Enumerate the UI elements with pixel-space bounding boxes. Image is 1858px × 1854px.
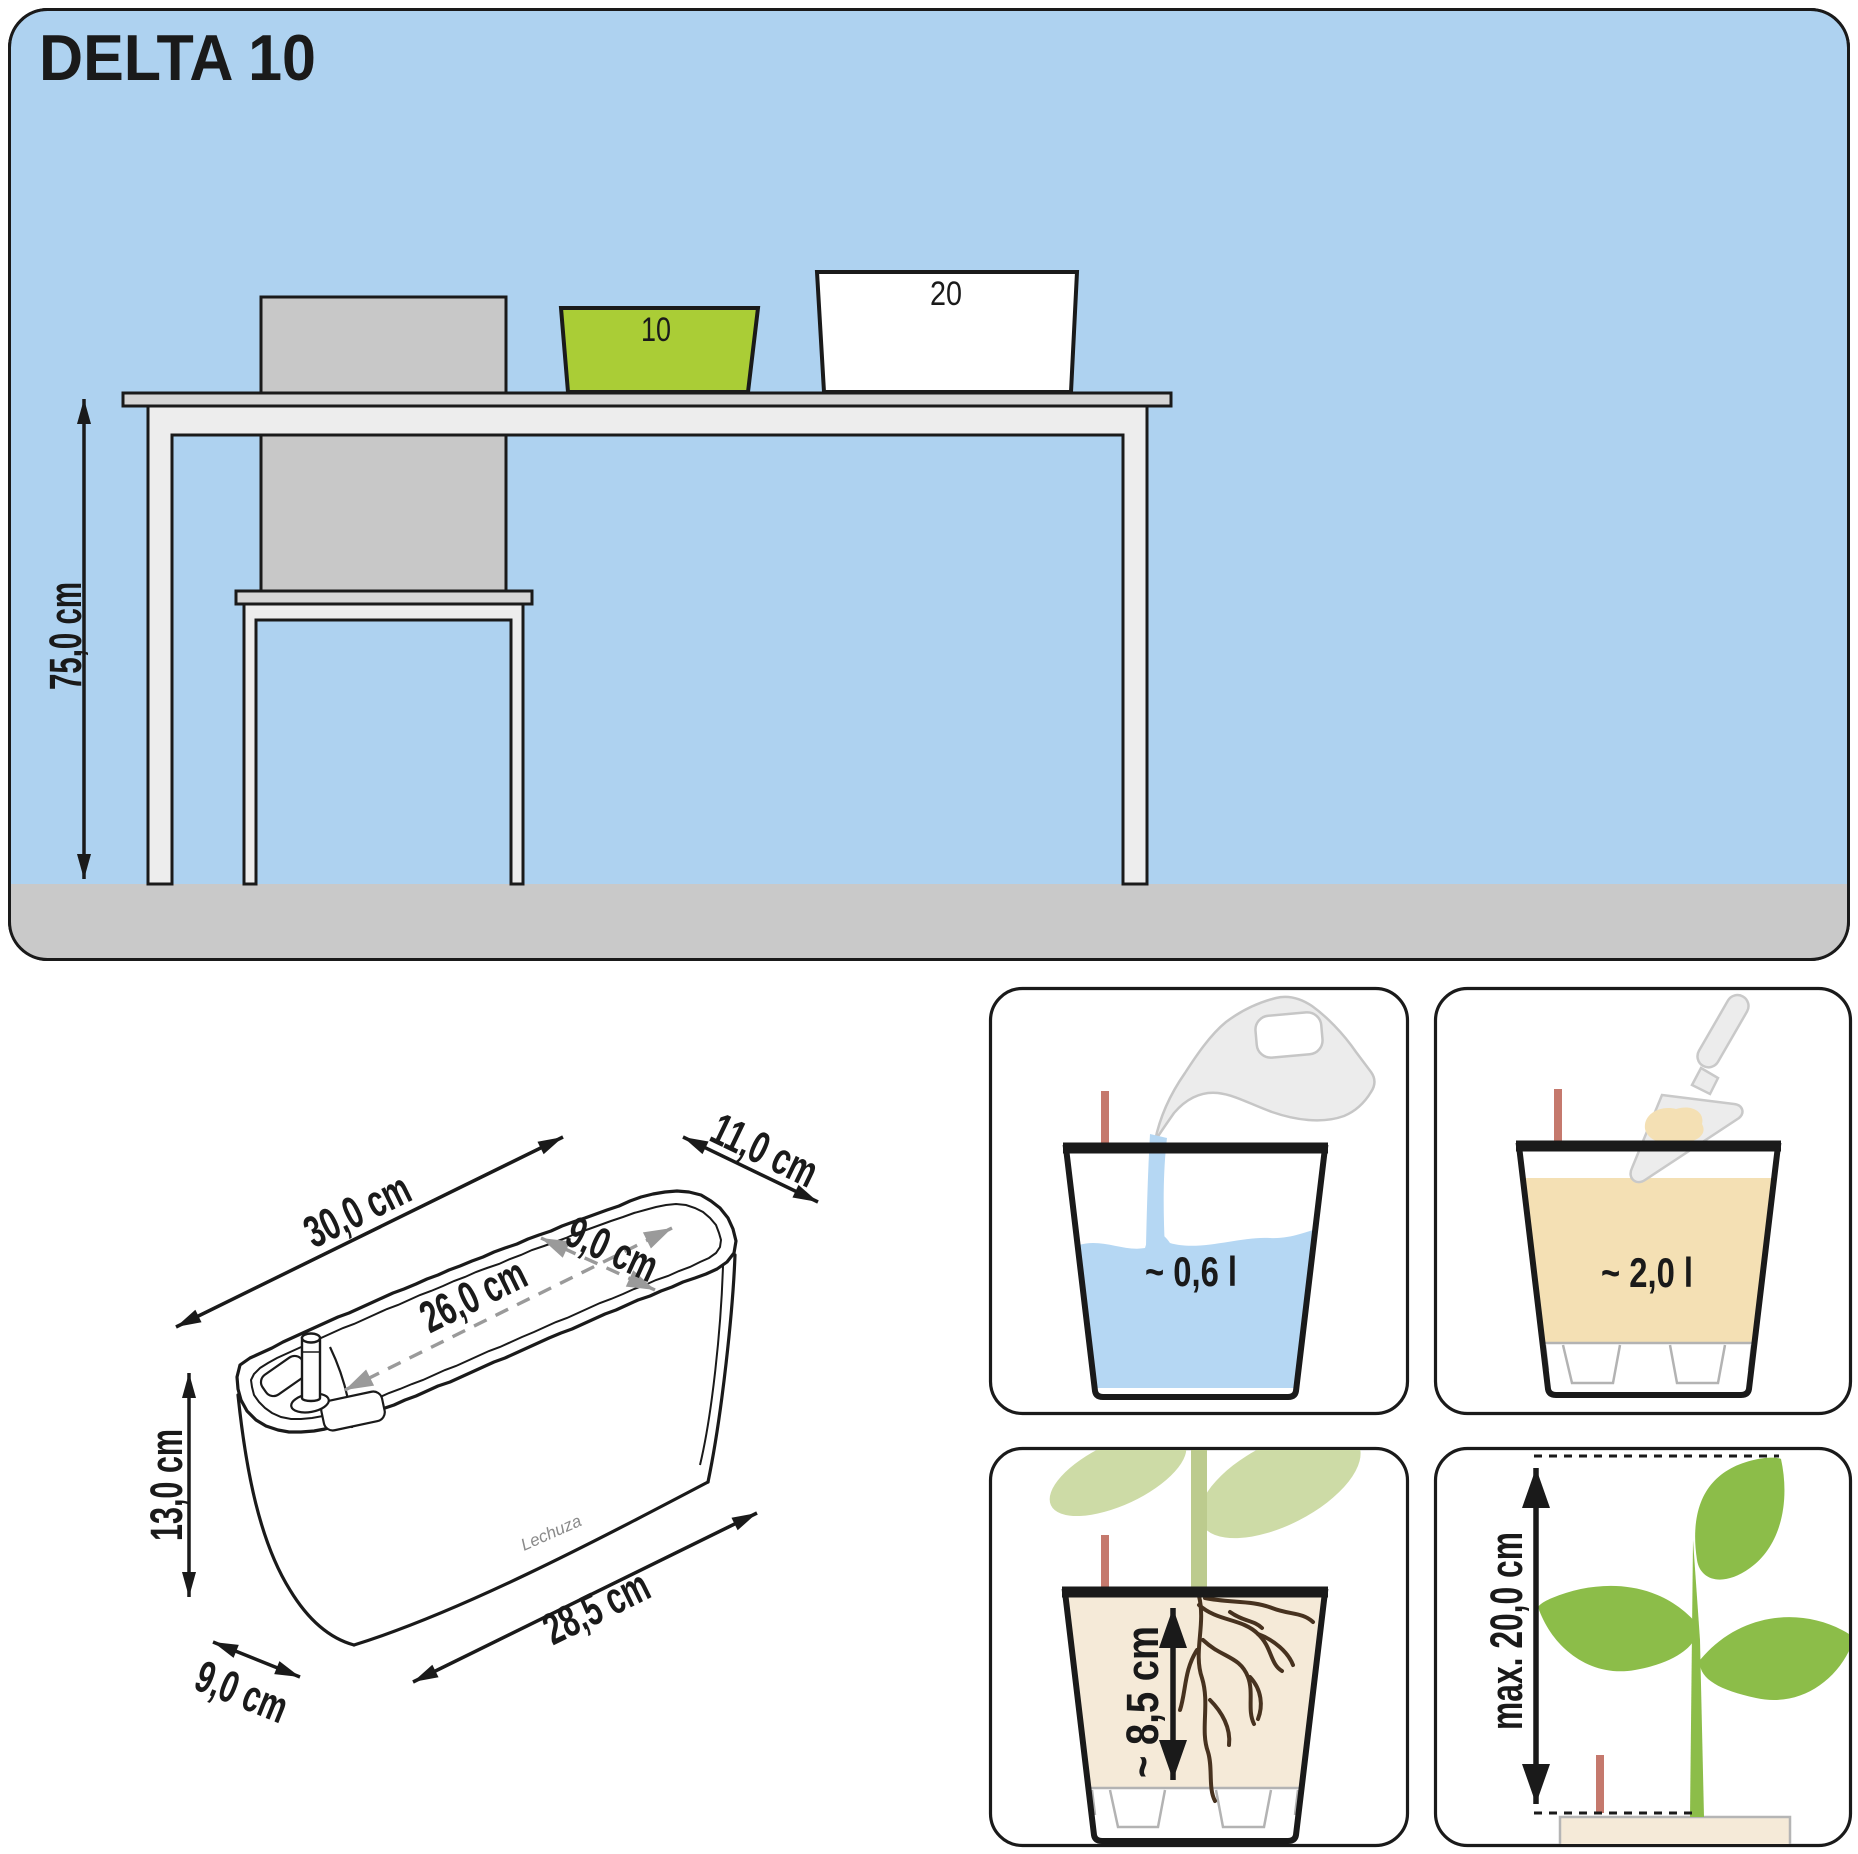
- svg-text:20: 20: [930, 275, 962, 313]
- svg-text:~ 0,6 l: ~ 0,6 l: [1145, 1248, 1237, 1295]
- svg-text:10: 10: [641, 311, 671, 349]
- svg-text:13,0 cm: 13,0 cm: [141, 1429, 192, 1541]
- svg-text:~ 8,5 cm: ~ 8,5 cm: [1117, 1626, 1168, 1778]
- svg-text:75,0 cm: 75,0 cm: [40, 582, 91, 690]
- svg-text:~ 2,0 l: ~ 2,0 l: [1601, 1249, 1693, 1296]
- svg-text:max. 20,0 cm: max. 20,0 cm: [1481, 1532, 1532, 1730]
- svg-text:DELTA 10: DELTA 10: [39, 21, 316, 94]
